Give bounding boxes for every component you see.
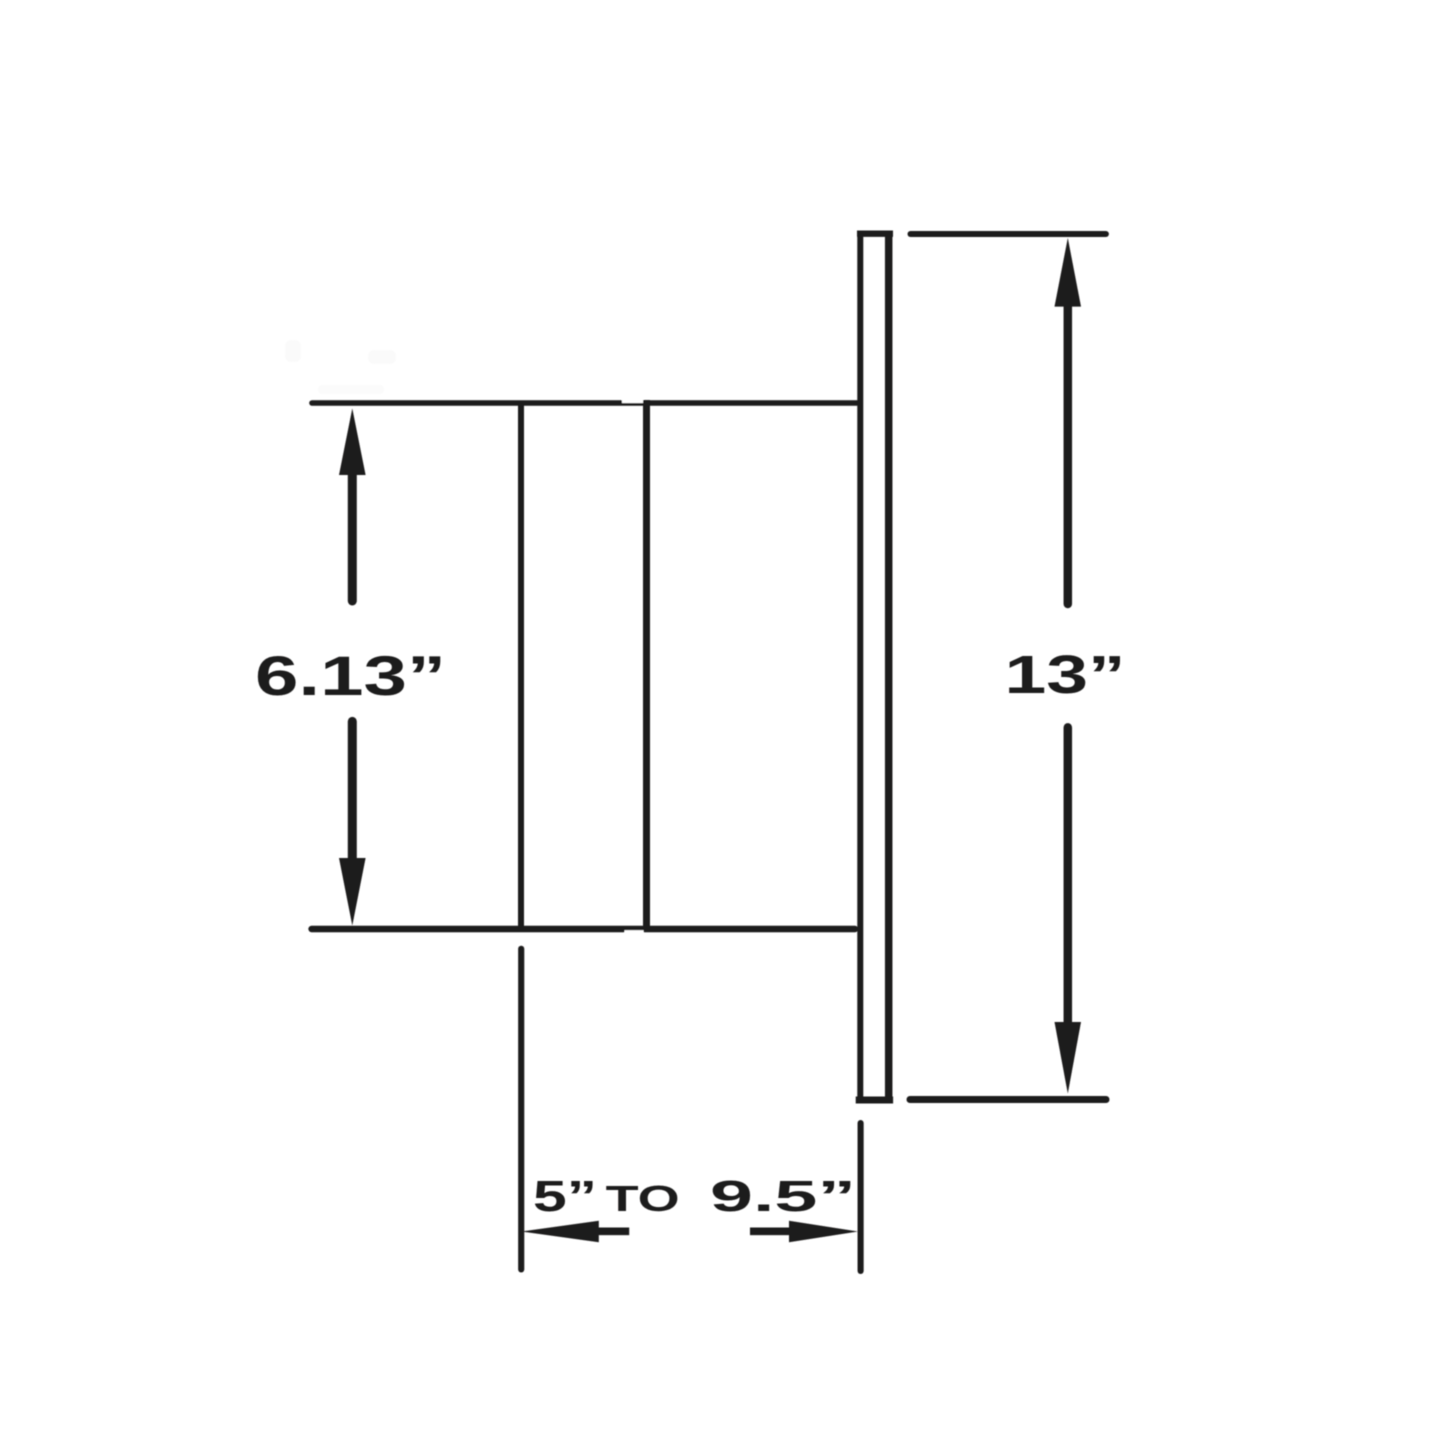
svg-text:TO: TO: [606, 1178, 680, 1219]
svg-text:9.5”: 9.5”: [710, 1172, 856, 1221]
svg-text:13”: 13”: [1005, 645, 1126, 705]
svg-text:5”: 5”: [533, 1172, 597, 1221]
svg-text:6.13”: 6.13”: [255, 644, 446, 707]
